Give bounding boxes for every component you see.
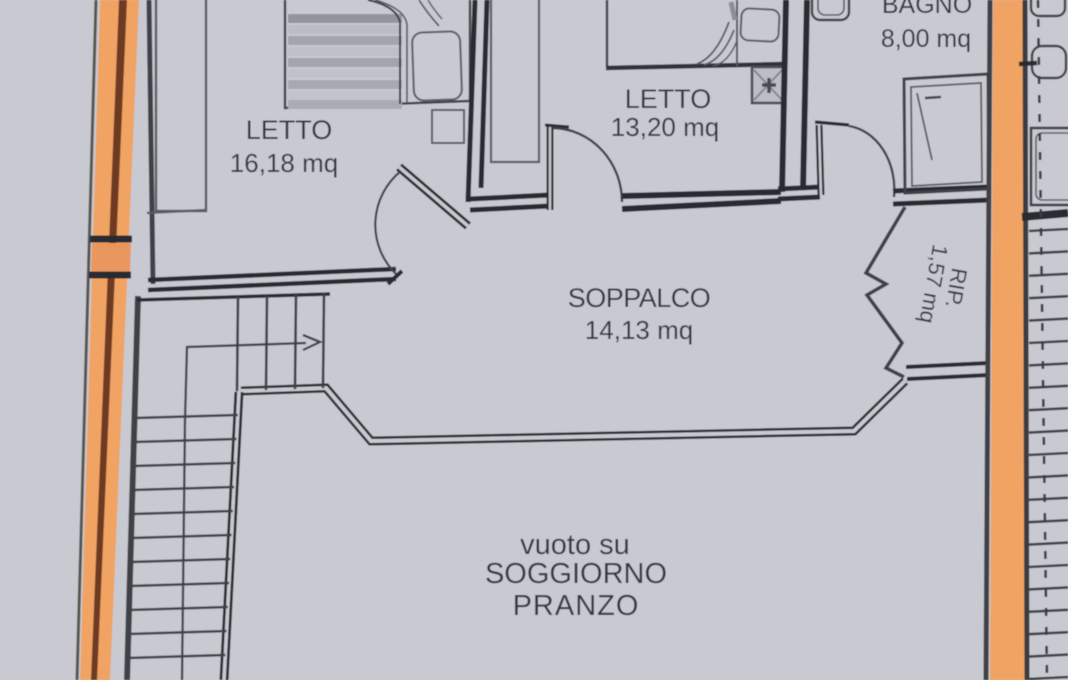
svg-text:vuoto su: vuoto su [520,529,630,561]
svg-text:PRANZO: PRANZO [513,590,640,622]
svg-text:13,20 mq: 13,20 mq [611,112,719,142]
svg-text:14,13 mq: 14,13 mq [585,315,693,345]
svg-text:LETTO: LETTO [246,115,333,145]
svg-text:SOPPALCO: SOPPALCO [568,283,711,313]
svg-text:BAGNO: BAGNO [882,0,972,19]
svg-text:LETTO: LETTO [625,84,712,114]
svg-text:SOGGIORNO: SOGGIORNO [485,558,667,590]
svg-text:8,00 mq: 8,00 mq [881,25,971,53]
svg-text:16,18 mq: 16,18 mq [230,148,338,178]
